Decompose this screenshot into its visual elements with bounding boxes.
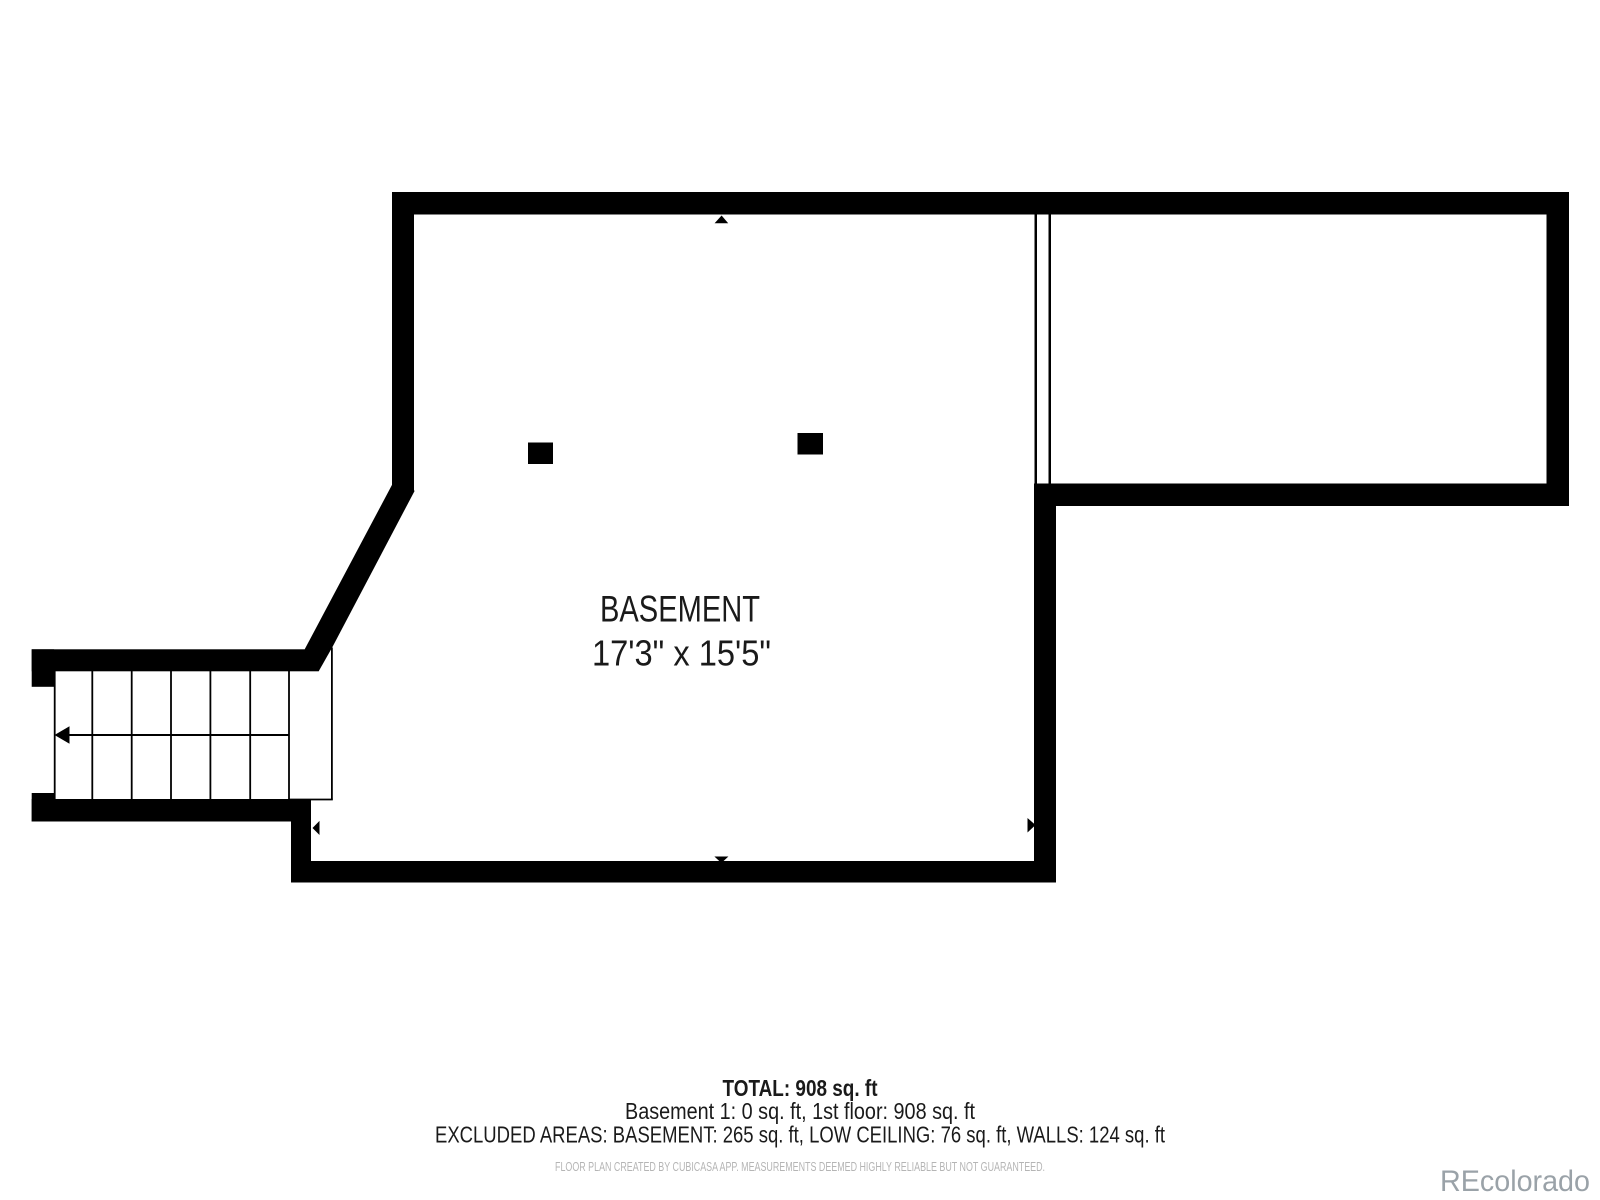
svg-text:REcolorado: REcolorado — [1440, 1165, 1590, 1198]
svg-text:FLOOR PLAN CREATED BY CUBICASA: FLOOR PLAN CREATED BY CUBICASA APP. MEAS… — [555, 1159, 1045, 1174]
svg-text:BASEMENT: BASEMENT — [600, 589, 760, 630]
svg-text:Basement 1: 0 sq. ft, 1st floo: Basement 1: 0 sq. ft, 1st floor: 908 sq.… — [625, 1098, 976, 1124]
svg-text:EXCLUDED AREAS: BASEMENT: 265: EXCLUDED AREAS: BASEMENT: 265 sq. ft, LO… — [435, 1122, 1165, 1148]
svg-text:17'3" x 15'5": 17'3" x 15'5" — [592, 633, 771, 674]
